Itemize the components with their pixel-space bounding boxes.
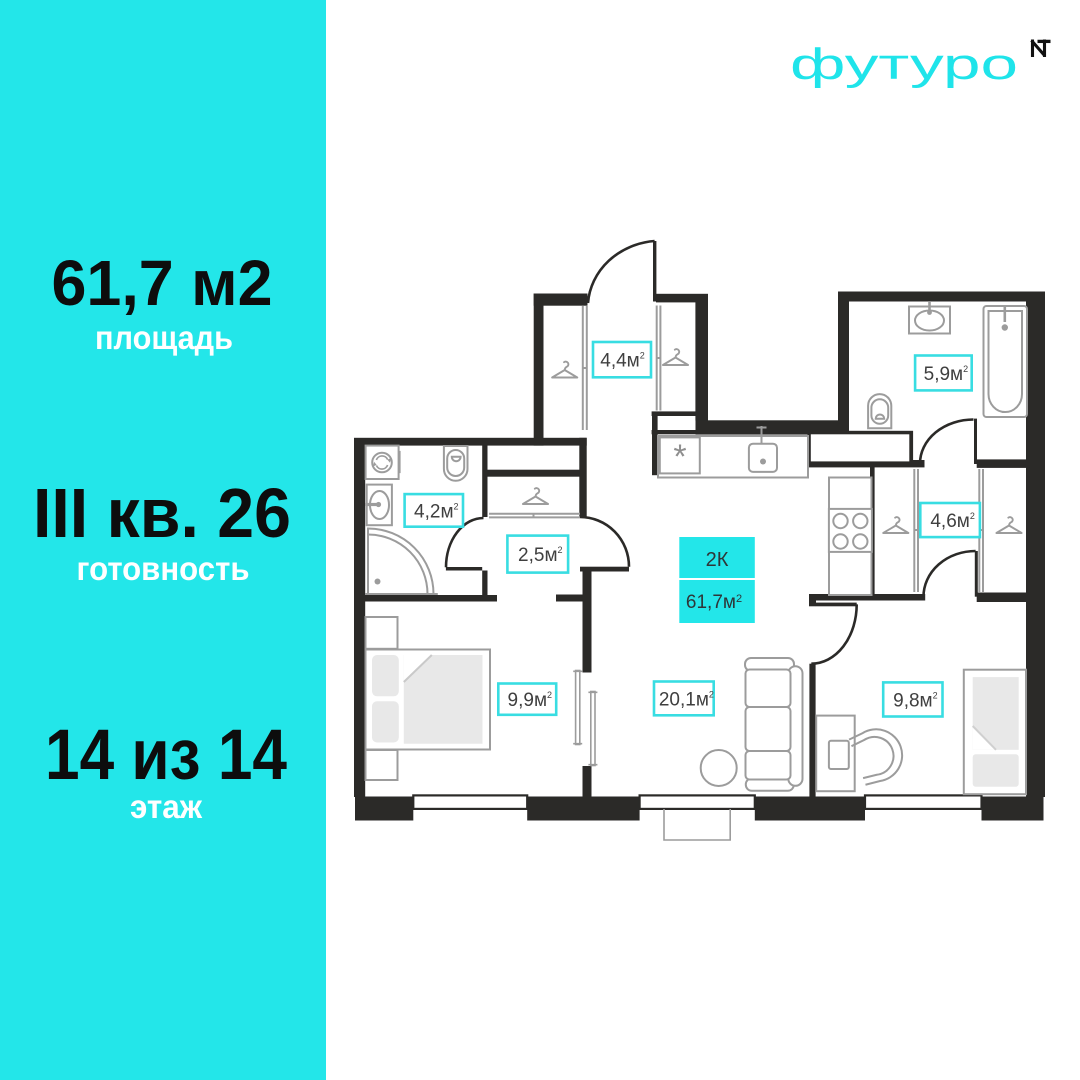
svg-text:14 из 14: 14 из 14 xyxy=(45,716,287,795)
svg-text:этаж: этаж xyxy=(130,788,203,825)
svg-text:футуро: футуро xyxy=(790,40,1018,89)
svg-text:площадь: площадь xyxy=(95,319,233,356)
svg-text:61,7 м2: 61,7 м2 xyxy=(52,247,273,319)
svg-text:III кв. 26: III кв. 26 xyxy=(33,474,291,552)
svg-text:4,4м2: 4,4м2 xyxy=(600,351,645,372)
svg-text:4,2м2: 4,2м2 xyxy=(414,501,459,522)
svg-text:9,9м2: 9,9м2 xyxy=(508,690,553,711)
svg-text:61,7м2: 61,7м2 xyxy=(686,592,742,613)
svg-text:5,9м2: 5,9м2 xyxy=(924,364,969,385)
svg-text:4,6м2: 4,6м2 xyxy=(930,511,975,532)
svg-text:*: * xyxy=(673,438,686,476)
svg-text:2,5м2: 2,5м2 xyxy=(518,545,563,566)
svg-text:2К: 2К xyxy=(706,549,729,571)
svg-text:9,8м2: 9,8м2 xyxy=(893,690,938,711)
svg-text:20,1м2: 20,1м2 xyxy=(659,689,714,710)
svg-text:готовность: готовность xyxy=(77,550,250,587)
